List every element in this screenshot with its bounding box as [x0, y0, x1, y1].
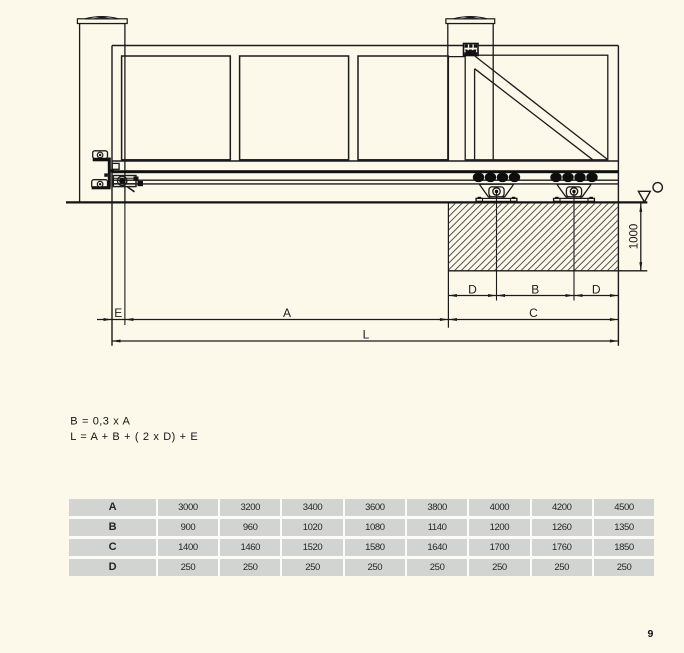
svg-text:E: E: [114, 306, 122, 320]
svg-text:B = 0,3 x A: B = 0,3 x A: [70, 415, 130, 427]
svg-text:L: L: [363, 328, 370, 342]
svg-text:L = A + B + ( 2 x D) + E: L = A + B + ( 2 x D) + E: [70, 431, 198, 443]
svg-text:1000: 1000: [628, 224, 640, 250]
svg-text:A: A: [283, 306, 291, 320]
svg-text:B: B: [531, 283, 539, 297]
svg-text:C: C: [529, 306, 538, 320]
svg-text:D: D: [592, 283, 601, 297]
svg-text:D: D: [468, 283, 477, 297]
